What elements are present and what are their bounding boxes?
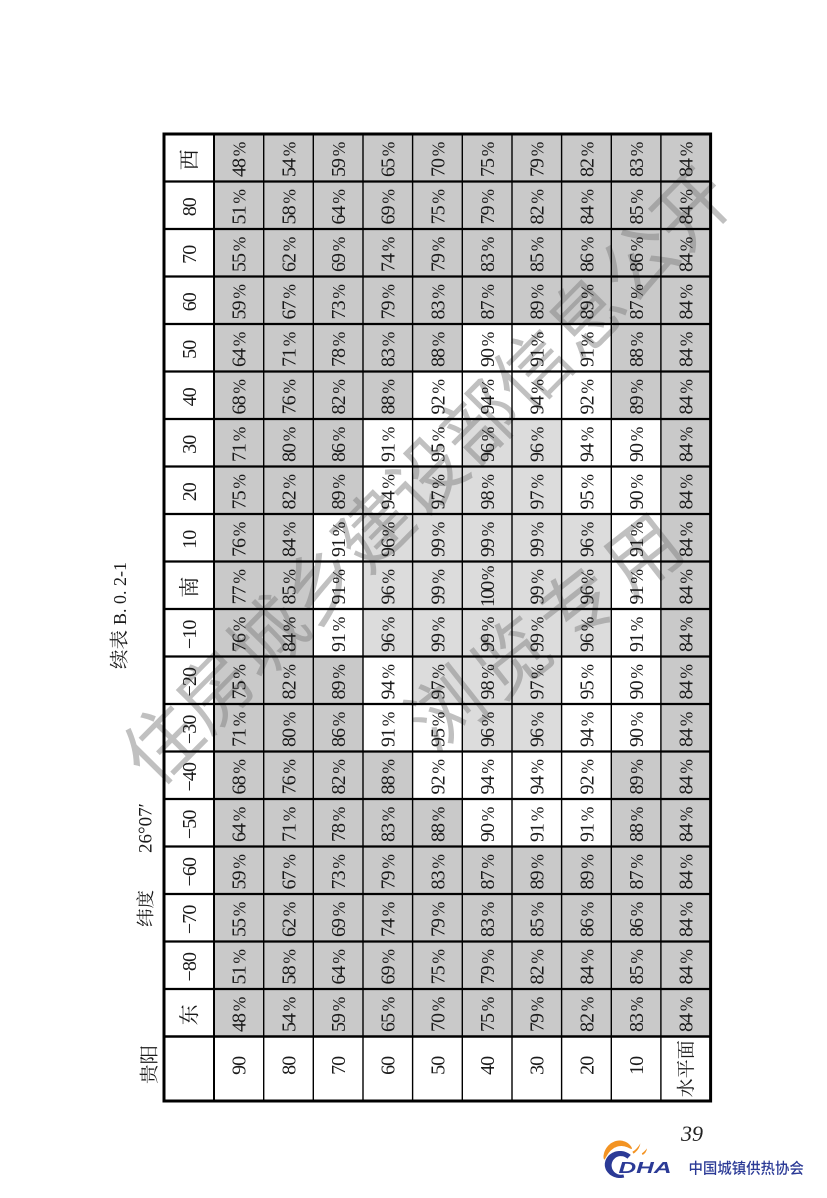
svg-text:89%: 89% <box>576 855 598 890</box>
svg-text:83%: 83% <box>626 997 648 1032</box>
svg-text:73%: 73% <box>328 285 350 320</box>
svg-text:96%: 96% <box>378 617 400 652</box>
svg-text:59%: 59% <box>229 855 251 890</box>
svg-text:40: 40 <box>179 387 201 406</box>
svg-text:97%: 97% <box>427 475 449 510</box>
svg-text:84%: 84% <box>676 237 698 272</box>
svg-text:84%: 84% <box>676 190 698 225</box>
svg-text:39: 39 <box>680 1121 703 1146</box>
svg-text:94%: 94% <box>527 760 549 795</box>
svg-text:83%: 83% <box>427 285 449 320</box>
svg-text:67%: 67% <box>278 855 300 890</box>
svg-text:74%: 74% <box>378 902 400 937</box>
svg-text:82%: 82% <box>576 997 598 1032</box>
svg-text:−10: −10 <box>179 620 201 649</box>
svg-text:30: 30 <box>527 1056 549 1075</box>
svg-text:88%: 88% <box>427 807 449 842</box>
svg-text:80: 80 <box>179 197 201 216</box>
svg-text:96%: 96% <box>378 522 400 557</box>
svg-text:80%: 80% <box>278 712 300 747</box>
svg-text:68%: 68% <box>229 760 251 795</box>
svg-text:88%: 88% <box>378 760 400 795</box>
svg-text:75%: 75% <box>427 190 449 225</box>
svg-text:58%: 58% <box>278 950 300 985</box>
svg-text:83%: 83% <box>477 902 499 937</box>
svg-text:84%: 84% <box>278 617 300 652</box>
svg-text:91%: 91% <box>378 712 400 747</box>
svg-text:99%: 99% <box>477 522 499 557</box>
svg-text:96%: 96% <box>378 570 400 605</box>
svg-text:58%: 58% <box>278 190 300 225</box>
svg-text:91%: 91% <box>626 617 648 652</box>
svg-text:84%: 84% <box>676 712 698 747</box>
svg-text:69%: 69% <box>378 190 400 225</box>
svg-text:84%: 84% <box>676 570 698 605</box>
svg-text:70%: 70% <box>427 997 449 1032</box>
svg-text:87%: 87% <box>477 285 499 320</box>
svg-text:94%: 94% <box>477 380 499 415</box>
svg-text:100%: 100% <box>477 566 499 607</box>
svg-text:67%: 67% <box>278 285 300 320</box>
svg-text:87%: 87% <box>477 855 499 890</box>
svg-text:90%: 90% <box>477 332 499 367</box>
svg-text:92%: 92% <box>427 760 449 795</box>
svg-text:84%: 84% <box>676 522 698 557</box>
svg-text:B. 0. 2-1: B. 0. 2-1 <box>110 562 130 625</box>
svg-text:96%: 96% <box>576 522 598 557</box>
svg-text:86%: 86% <box>328 427 350 462</box>
svg-text:89%: 89% <box>328 475 350 510</box>
svg-text:95%: 95% <box>427 712 449 747</box>
svg-text:82%: 82% <box>328 380 350 415</box>
svg-text:59%: 59% <box>328 997 350 1032</box>
svg-text:75%: 75% <box>229 665 251 700</box>
svg-text:73%: 73% <box>328 855 350 890</box>
svg-text:91%: 91% <box>328 570 350 605</box>
svg-text:87%: 87% <box>626 285 648 320</box>
svg-text:90%: 90% <box>626 475 648 510</box>
svg-text:99%: 99% <box>427 522 449 557</box>
svg-text:84%: 84% <box>576 950 598 985</box>
svg-text:71%: 71% <box>229 712 251 747</box>
svg-text:62%: 62% <box>278 902 300 937</box>
svg-text:−30: −30 <box>179 715 201 744</box>
svg-text:97%: 97% <box>427 665 449 700</box>
svg-text:64%: 64% <box>328 190 350 225</box>
svg-text:99%: 99% <box>477 617 499 652</box>
svg-text:54%: 54% <box>278 142 300 177</box>
svg-text:−70: −70 <box>179 905 201 934</box>
svg-text:84%: 84% <box>676 427 698 462</box>
svg-text:85%: 85% <box>527 237 549 272</box>
svg-text:92%: 92% <box>576 760 598 795</box>
svg-text:20: 20 <box>576 1056 598 1075</box>
svg-text:89%: 89% <box>576 285 598 320</box>
svg-text:91%: 91% <box>378 427 400 462</box>
svg-text:88%: 88% <box>626 807 648 842</box>
svg-text:94%: 94% <box>378 665 400 700</box>
svg-text:79%: 79% <box>477 950 499 985</box>
svg-text:70: 70 <box>179 245 201 264</box>
svg-text:88%: 88% <box>626 332 648 367</box>
svg-text:76%: 76% <box>278 380 300 415</box>
svg-text:55%: 55% <box>229 902 251 937</box>
svg-text:84%: 84% <box>676 475 698 510</box>
svg-text:96%: 96% <box>477 427 499 462</box>
svg-text:82%: 82% <box>278 475 300 510</box>
svg-text:91%: 91% <box>328 617 350 652</box>
svg-text:64%: 64% <box>328 950 350 985</box>
svg-text:51%: 51% <box>229 950 251 985</box>
svg-text:84%: 84% <box>676 380 698 415</box>
svg-text:99%: 99% <box>427 617 449 652</box>
svg-text:10: 10 <box>626 1056 648 1075</box>
svg-text:98%: 98% <box>477 475 499 510</box>
svg-text:82%: 82% <box>527 950 549 985</box>
svg-text:83%: 83% <box>378 807 400 842</box>
svg-text:79%: 79% <box>527 997 549 1032</box>
svg-text:94%: 94% <box>378 475 400 510</box>
svg-text:70: 70 <box>328 1056 350 1075</box>
svg-text:83%: 83% <box>477 237 499 272</box>
svg-text:80: 80 <box>278 1056 300 1075</box>
svg-text:89%: 89% <box>527 855 549 890</box>
svg-text:94%: 94% <box>527 380 549 415</box>
svg-text:79%: 79% <box>477 190 499 225</box>
svg-text:84%: 84% <box>676 285 698 320</box>
svg-text:83%: 83% <box>427 855 449 890</box>
svg-text:82%: 82% <box>278 665 300 700</box>
svg-text:84%: 84% <box>676 665 698 700</box>
svg-text:65%: 65% <box>378 997 400 1032</box>
svg-text:90: 90 <box>229 1056 251 1075</box>
svg-text:90%: 90% <box>477 807 499 842</box>
svg-text:98%: 98% <box>477 665 499 700</box>
svg-text:−40: −40 <box>179 762 201 791</box>
svg-text:79%: 79% <box>378 285 400 320</box>
svg-text:71%: 71% <box>278 807 300 842</box>
svg-text:85%: 85% <box>527 902 549 937</box>
svg-text:88%: 88% <box>427 332 449 367</box>
svg-text:82%: 82% <box>328 760 350 795</box>
svg-text:84%: 84% <box>676 332 698 367</box>
svg-text:84%: 84% <box>676 855 698 890</box>
svg-text:76%: 76% <box>229 522 251 557</box>
svg-text:50: 50 <box>179 340 201 359</box>
svg-text:84%: 84% <box>576 190 598 225</box>
svg-text:90%: 90% <box>626 712 648 747</box>
svg-text:88%: 88% <box>378 380 400 415</box>
svg-text:85%: 85% <box>626 950 648 985</box>
svg-text:85%: 85% <box>278 570 300 605</box>
svg-text:84%: 84% <box>676 617 698 652</box>
svg-text:75%: 75% <box>477 997 499 1032</box>
svg-text:99%: 99% <box>527 522 549 557</box>
svg-text:84%: 84% <box>676 807 698 842</box>
svg-text:82%: 82% <box>527 190 549 225</box>
svg-text:95%: 95% <box>576 665 598 700</box>
svg-text:79%: 79% <box>427 237 449 272</box>
svg-text:84%: 84% <box>676 760 698 795</box>
svg-text:75%: 75% <box>229 475 251 510</box>
svg-text:40: 40 <box>477 1056 499 1075</box>
svg-text:86%: 86% <box>328 712 350 747</box>
svg-text:60: 60 <box>378 1056 400 1075</box>
svg-text:75%: 75% <box>427 950 449 985</box>
svg-text:89%: 89% <box>328 665 350 700</box>
svg-text:89%: 89% <box>626 380 648 415</box>
svg-text:97%: 97% <box>527 475 549 510</box>
svg-text:48%: 48% <box>229 142 251 177</box>
svg-text:91%: 91% <box>576 807 598 842</box>
svg-text:70%: 70% <box>427 142 449 177</box>
svg-text:79%: 79% <box>527 142 549 177</box>
svg-text:99%: 99% <box>427 570 449 605</box>
svg-text:94%: 94% <box>576 427 598 462</box>
svg-text:84%: 84% <box>278 522 300 557</box>
svg-text:60: 60 <box>179 292 201 311</box>
svg-text:99%: 99% <box>527 617 549 652</box>
svg-text:78%: 78% <box>328 807 350 842</box>
svg-text:10: 10 <box>179 530 201 549</box>
svg-text:59%: 59% <box>229 285 251 320</box>
svg-text:−60: −60 <box>179 857 201 886</box>
svg-text:85%: 85% <box>626 190 648 225</box>
svg-text:26°07′: 26°07′ <box>136 803 157 853</box>
svg-text:96%: 96% <box>576 570 598 605</box>
svg-text:76%: 76% <box>278 760 300 795</box>
svg-text:48%: 48% <box>229 997 251 1032</box>
svg-text:87%: 87% <box>626 855 648 890</box>
svg-text:75%: 75% <box>477 142 499 177</box>
svg-text:91%: 91% <box>626 522 648 557</box>
svg-text:51%: 51% <box>229 190 251 225</box>
svg-text:92%: 92% <box>576 380 598 415</box>
svg-text:91%: 91% <box>527 807 549 842</box>
svg-text:82%: 82% <box>576 142 598 177</box>
svg-text:68%: 68% <box>229 380 251 415</box>
svg-text:30: 30 <box>179 435 201 454</box>
svg-text:90%: 90% <box>626 427 648 462</box>
svg-text:64%: 64% <box>229 807 251 842</box>
svg-text:69%: 69% <box>328 902 350 937</box>
svg-text:94%: 94% <box>477 760 499 795</box>
svg-text:84%: 84% <box>676 902 698 937</box>
svg-text:−80: −80 <box>179 952 201 981</box>
svg-text:92%: 92% <box>427 380 449 415</box>
svg-text:99%: 99% <box>527 570 549 605</box>
svg-text:96%: 96% <box>527 427 549 462</box>
svg-text:64%: 64% <box>229 332 251 367</box>
svg-text:65%: 65% <box>378 142 400 177</box>
svg-text:83%: 83% <box>626 142 648 177</box>
svg-text:50: 50 <box>427 1056 449 1075</box>
svg-text:71%: 71% <box>278 332 300 367</box>
svg-text:62%: 62% <box>278 237 300 272</box>
svg-text:96%: 96% <box>576 617 598 652</box>
svg-text:80%: 80% <box>278 427 300 462</box>
svg-text:91%: 91% <box>328 522 350 557</box>
svg-text:20: 20 <box>179 482 201 501</box>
svg-text:91%: 91% <box>626 570 648 605</box>
svg-text:69%: 69% <box>378 950 400 985</box>
svg-text:54%: 54% <box>278 997 300 1032</box>
svg-text:89%: 89% <box>626 760 648 795</box>
svg-text:91%: 91% <box>576 332 598 367</box>
svg-text:94%: 94% <box>576 712 598 747</box>
svg-text:83%: 83% <box>378 332 400 367</box>
svg-text:−50: −50 <box>179 810 201 839</box>
svg-text:DHA: DHA <box>619 1160 672 1177</box>
svg-text:97%: 97% <box>527 665 549 700</box>
svg-text:86%: 86% <box>576 902 598 937</box>
svg-text:86%: 86% <box>626 902 648 937</box>
svg-text:59%: 59% <box>328 142 350 177</box>
svg-text:76%: 76% <box>229 617 251 652</box>
svg-text:77%: 77% <box>229 570 251 605</box>
svg-text:71%: 71% <box>229 427 251 462</box>
svg-text:78%: 78% <box>328 332 350 367</box>
svg-text:−20: −20 <box>179 667 201 696</box>
svg-text:86%: 86% <box>626 237 648 272</box>
svg-text:95%: 95% <box>576 475 598 510</box>
svg-text:96%: 96% <box>477 712 499 747</box>
svg-text:79%: 79% <box>427 902 449 937</box>
svg-text:90%: 90% <box>626 665 648 700</box>
svg-text:91%: 91% <box>527 332 549 367</box>
svg-text:79%: 79% <box>378 855 400 890</box>
svg-text:84%: 84% <box>676 142 698 177</box>
svg-text:84%: 84% <box>676 950 698 985</box>
svg-text:69%: 69% <box>328 237 350 272</box>
svg-text:84%: 84% <box>676 997 698 1032</box>
svg-text:74%: 74% <box>378 237 400 272</box>
svg-text:55%: 55% <box>229 237 251 272</box>
svg-text:95%: 95% <box>427 427 449 462</box>
svg-text:86%: 86% <box>576 237 598 272</box>
svg-text:89%: 89% <box>527 285 549 320</box>
svg-text:96%: 96% <box>527 712 549 747</box>
